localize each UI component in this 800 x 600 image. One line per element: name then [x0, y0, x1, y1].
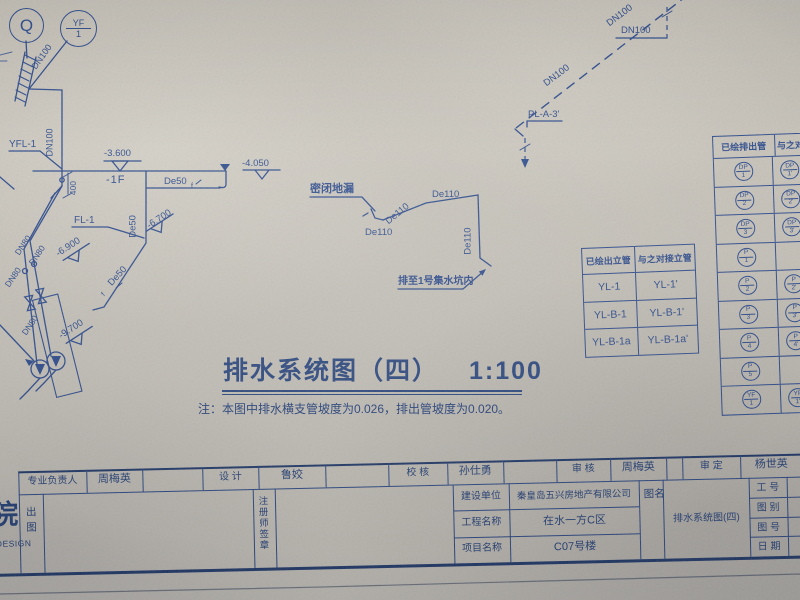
publish-label: 出图: [25, 506, 37, 556]
filled-symbols: [25, 159, 529, 375]
drawing-title: 排水系统图（四） 1:100: [223, 356, 543, 386]
dashed-risers: [525, 7, 667, 160]
field-design-label: 设 计: [202, 472, 258, 483]
outlet-table-header: 已绘排出管 与之对接: [713, 132, 800, 158]
field-project-label: 工程名称: [453, 517, 509, 528]
riser-table-row: YL-1 YL-1': [583, 270, 696, 302]
field-check-value: 孙仕勇: [447, 465, 503, 477]
pipe-id-bottom: 4': [789, 340, 800, 348]
field-check-label: 校 核: [388, 468, 447, 479]
field-item-label: 项目名称: [454, 543, 510, 554]
riser-cell: YL-B-1a: [585, 328, 638, 356]
drawing-title-text: 排水系统图（四）: [223, 356, 439, 386]
title-underline: [222, 390, 522, 392]
field-approve-label: 审 定: [682, 461, 740, 472]
pipe-id-bottom: 5: [743, 370, 757, 378]
outlet-table-row: DP2 DP2': [715, 182, 800, 215]
pipe-id-symbol: P4: [740, 333, 760, 353]
riser-cell: YL-1': [635, 271, 696, 300]
figure-name-label: 图名: [643, 488, 665, 552]
field-project-value: 在水一方C区: [509, 514, 639, 528]
pipe-id-bottom: 2: [740, 285, 754, 293]
pipe-id-bottom: 3: [738, 228, 752, 236]
pipe-id-bottom: 2': [784, 198, 798, 206]
registered-seal-label: 注册师签章: [257, 496, 268, 566]
vent-symbol-q: Q: [9, 8, 44, 43]
field-lead-value: 周梅英: [86, 474, 142, 486]
pipe-id-bottom: 3': [785, 226, 799, 234]
title-underline-2: [222, 394, 522, 395]
riser-table-header: 已绘出立管 与之对接立管: [582, 245, 695, 274]
pipe-lines: [0, 11, 672, 399]
outlet-table-row: P3 P3': [719, 296, 800, 329]
field-item-value: C07号楼: [510, 540, 640, 554]
pipe-id-bottom: 3': [788, 311, 800, 319]
pipe-id-bottom: 4: [742, 342, 756, 350]
pipe-id-symbol: DP1: [734, 162, 754, 182]
riser-cell: YL-B-1: [584, 300, 637, 328]
field-review-label: 审 核: [556, 464, 610, 475]
outlet-table-row: DP3 DP3': [716, 210, 800, 243]
pipe-id-symbol: P4': [786, 331, 800, 351]
vent-symbol-q-label: Q: [20, 16, 33, 36]
field-approve-value: 杨世英: [740, 459, 800, 471]
institute-name-partial: 院: [0, 501, 19, 529]
pipe-id-symbol: DP3: [736, 219, 756, 239]
pipe-id-symbol: P3: [739, 304, 759, 324]
riser-table-row: YL-B-1a YL-B-1a': [585, 325, 698, 357]
pipe-id-bottom: 1: [744, 399, 758, 407]
outlet-table-row: YF1 YF1': [722, 381, 800, 414]
outlet-table-row: P5: [721, 353, 800, 386]
outlet-table-row: P1: [717, 239, 800, 272]
field-design-value: 鲁姣: [258, 469, 325, 482]
field-lead-label: 专业负责人: [20, 476, 84, 487]
figure-name-value: 排水系统图(四): [663, 513, 749, 525]
outlet-table: 已绘排出管 与之对接 DP1 DP1' DP2 DP2' DP3 DP3' P1…: [712, 131, 800, 415]
field-client-value: 秦皇岛五兴房地产有限公司: [509, 489, 639, 501]
pipe-id-symbol: DP2': [781, 189, 800, 209]
pipe-id-symbol: YF1: [741, 390, 761, 410]
pipe-id-symbol: P1: [737, 247, 757, 267]
pipe-id-bottom: 2: [737, 199, 751, 207]
drawing-title-scale: 1:100: [469, 356, 543, 386]
vent-symbol-yf1-top: YF: [73, 18, 85, 28]
dashed-pipe-lines: [516, 0, 689, 128]
field-fig-no-label: 图 号: [750, 523, 788, 534]
riser-table-header-left: 已绘出立管: [582, 247, 634, 274]
vent-symbol-yf1: YF 1: [60, 10, 97, 47]
riser-cell: YL-1: [583, 273, 636, 301]
pipe-id-symbol: P2: [738, 276, 758, 296]
title-block: 专业负责人 周梅英 设 计 鲁姣 校 核 孙仕勇 审 核 周梅英 审 定 杨世英…: [0, 443, 800, 580]
drawing-photo: Q YF 1 DN100 DN100 YFL-1 -3.600 -1F 400 …: [0, 0, 800, 600]
outlet-table-row: P2 P2': [718, 267, 800, 300]
riser-table-header-right: 与之对接立管: [634, 245, 695, 272]
field-date-label: 日 期: [750, 542, 788, 553]
pipe-id-bottom: 3: [741, 313, 755, 321]
outlet-table-header-right: 与之对接: [774, 132, 800, 155]
pipe-id-symbol: DP3': [782, 217, 800, 237]
vent-symbol-yf1-bottom: 1: [66, 28, 91, 40]
pipe-id-symbol: DP2: [735, 190, 755, 210]
pipe-id-bottom: 1': [791, 397, 800, 405]
riser-cell: YL-B-1a': [637, 326, 698, 355]
riser-table-row: YL-B-1 YL-B-1': [584, 297, 697, 329]
pipe-id-bottom: 1: [736, 171, 750, 179]
pipe-id-bottom: 2': [787, 283, 800, 291]
pipe-id-symbol: P3': [785, 303, 800, 323]
pipe-id-symbol: YF1': [788, 388, 800, 408]
pipe-id-symbol: DP1': [780, 160, 800, 180]
field-fig-type-label: 图 别: [749, 503, 787, 514]
outlet-table-row: P4 P4': [720, 324, 800, 357]
pipe-id-bottom: 1': [783, 169, 797, 177]
field-client-label: 建设单位: [453, 491, 509, 502]
riser-cell: YL-B-1': [636, 298, 697, 327]
pipe-id-bottom: 1: [739, 256, 753, 264]
field-job-no-label: 工 号: [749, 483, 787, 494]
pipe-id-symbol: P2': [784, 274, 800, 294]
outlet-table-row: DP1 DP1': [714, 153, 800, 186]
field-review-value: 周梅英: [610, 462, 666, 474]
outlet-table-header-left: 已绘排出管: [713, 135, 774, 158]
pipe-id-symbol: P5: [740, 361, 760, 381]
riser-table: 已绘出立管 与之对接立管 YL-1 YL-1' YL-B-1 YL-B-1' Y…: [581, 244, 699, 358]
